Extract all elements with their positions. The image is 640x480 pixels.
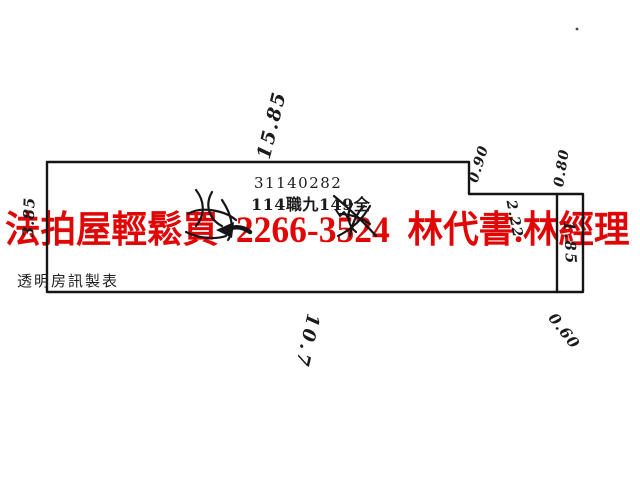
handwritten-scribble-left [186,190,250,240]
dimension-annotation-left: 3.85 [19,196,38,237]
source-caption: 透明房訊製表 [17,270,119,291]
floor-plan-svg [0,0,640,480]
scan-speck [576,28,579,31]
dimension-annotation-strip-inside: 1.85 [560,220,580,265]
parcel-number: 31140282 [254,174,342,192]
parcel-label: 114職九149全 [251,191,370,215]
scanned-survey-page: 法拍屋輕鬆買 2266-3524 林代書.林經理 311 [0,0,640,480]
